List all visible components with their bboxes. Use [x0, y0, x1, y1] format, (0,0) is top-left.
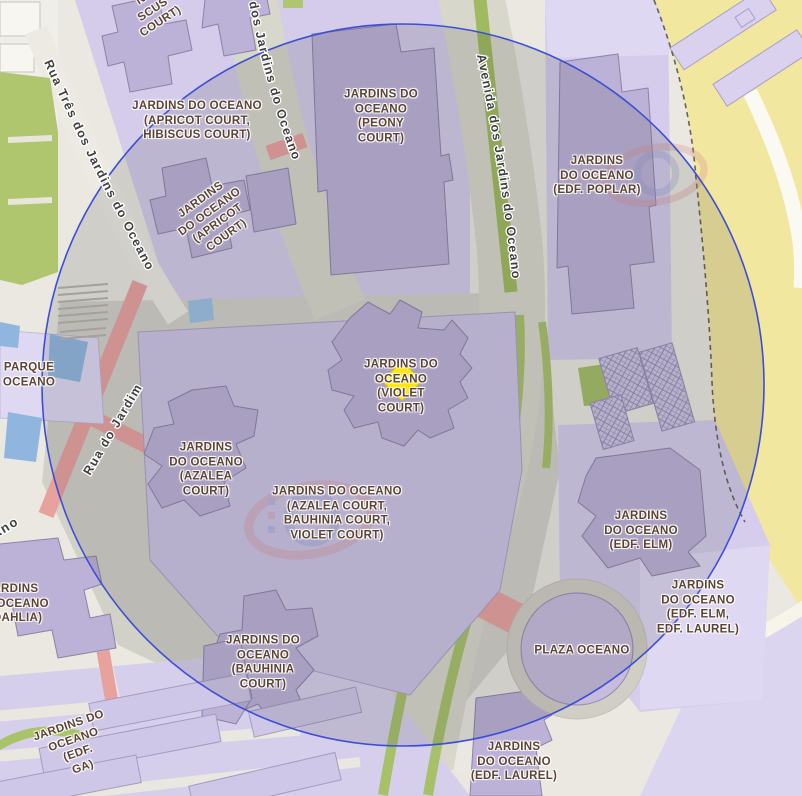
park-path: [8, 138, 52, 140]
park-left: [0, 72, 58, 285]
park-path: [8, 200, 52, 202]
building-small: [0, 44, 34, 72]
map-canvas[interactable]: Rua Três dos Jardins do Oceano dos Jardi…: [0, 0, 802, 796]
area-residential-topright-light: [545, 0, 668, 58]
green-sliver: [283, 0, 303, 8]
